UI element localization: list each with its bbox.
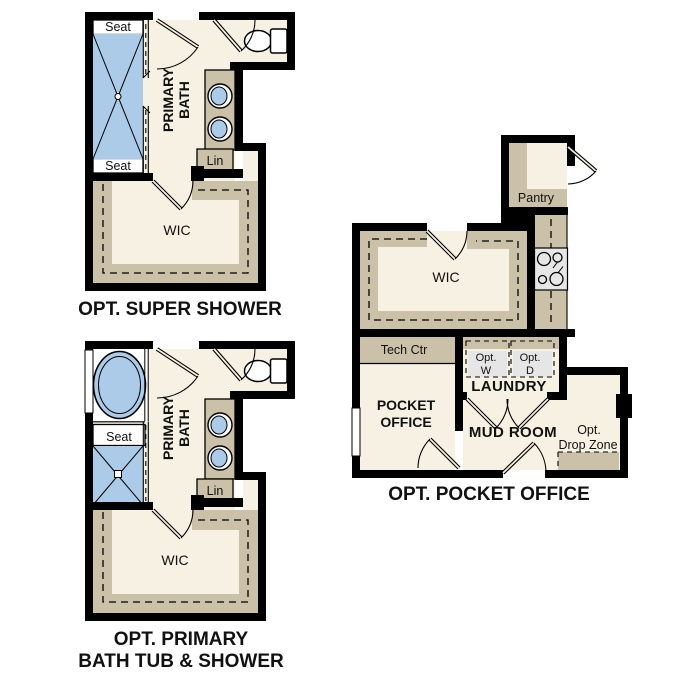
linen-label: Lin — [207, 484, 224, 498]
plan-caption-pocket-office: OPT. POCKET OFFICE — [388, 484, 590, 505]
toilet-fixture — [245, 29, 288, 53]
plan-opt-bath-tub-shower: Seat Lin WIC PRIMARY BATH OPT. PRIMARY B… — [78, 341, 295, 672]
opt-dryer-label-line2: D — [526, 365, 534, 377]
laundry-label: LAUNDRY — [471, 378, 547, 395]
opt-washer-label-line2: W — [481, 365, 492, 377]
svg-text:BATH: BATH — [176, 81, 192, 119]
svg-text:PRIMARY: PRIMARY — [160, 67, 176, 132]
tech-ctr-label: Tech Ctr — [381, 343, 428, 357]
wic-label: WIC — [432, 269, 459, 285]
opt-dryer-label-line1: Opt. — [520, 352, 541, 364]
drop-zone-label-line2: Drop Zone — [558, 438, 617, 452]
window — [352, 408, 360, 456]
wic-label: WIC — [163, 222, 190, 238]
floor-plan-sheet: Seat Seat Lin WIC PRIMARY BATH OPT. SUPE… — [0, 0, 687, 687]
drop-zone-bench — [558, 452, 619, 470]
kitchen-counter — [535, 215, 568, 329]
seat-label-bottom: Seat — [105, 159, 131, 173]
seat-label-top: Seat — [105, 20, 131, 34]
opt-washer-label-line1: Opt. — [476, 352, 497, 364]
floor-plan-canvas: Seat Seat Lin WIC PRIMARY BATH OPT. SUPE… — [0, 0, 687, 687]
pocket-office-label-line2: OFFICE — [380, 414, 431, 430]
plan-caption-super-shower: OPT. SUPER SHOWER — [78, 299, 282, 320]
pocket-office-label-line1: POCKET — [377, 397, 436, 413]
plan-opt-super-shower: Seat Seat Lin WIC PRIMARY BATH OPT. SUPE… — [78, 12, 295, 320]
mud-room-label: MUD ROOM — [469, 424, 557, 441]
pantry-label: Pantry — [518, 191, 555, 205]
vanity-double-sink — [205, 399, 235, 479]
plan-caption-tub-shower-line1: OPT. PRIMARY — [114, 629, 249, 650]
svg-text:PRIMARY: PRIMARY — [160, 395, 176, 460]
plan-opt-pocket-office: Pantry WIC Tech Ctr POCKET OFFICE Opt. W… — [352, 135, 632, 505]
linen-label: Lin — [207, 154, 224, 168]
toilet-fixture — [245, 359, 288, 383]
svg-text:BATH: BATH — [176, 409, 192, 447]
cooktop-appliance — [535, 248, 568, 290]
seat-label: Seat — [106, 430, 132, 444]
drop-zone-label-line1: Opt. — [577, 423, 601, 437]
plan-caption-tub-shower-line2: BATH TUB & SHOWER — [78, 651, 284, 672]
vanity-double-sink — [205, 70, 235, 150]
bathtub-fixture — [93, 349, 148, 421]
wic-label: WIC — [161, 552, 188, 568]
window — [85, 350, 93, 413]
super-shower-fixture — [93, 20, 143, 173]
